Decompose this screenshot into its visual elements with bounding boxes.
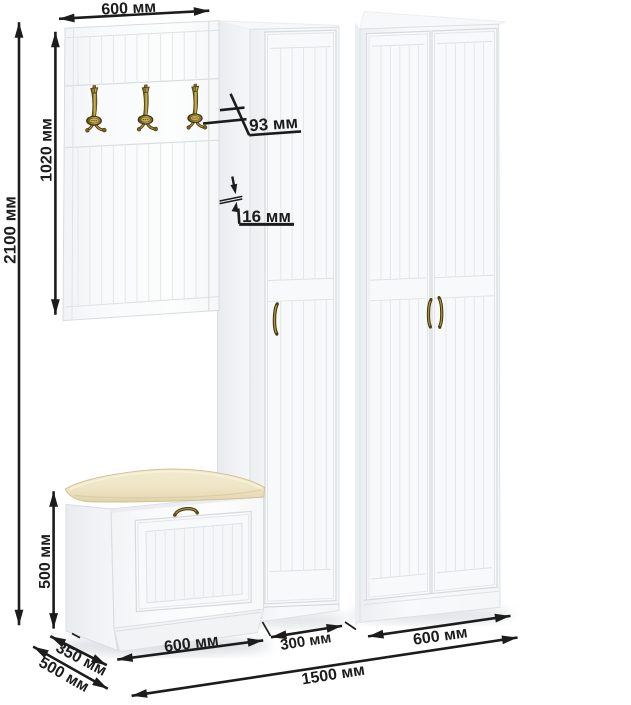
svg-text:500 мм: 500 мм [37, 534, 54, 589]
svg-text:2100 мм: 2100 мм [0, 196, 19, 264]
svg-text:16 мм: 16 мм [242, 207, 291, 226]
svg-text:1020 мм: 1020 мм [39, 118, 56, 182]
svg-text:600 мм: 600 мм [101, 0, 157, 19]
svg-text:93 мм: 93 мм [249, 113, 299, 136]
